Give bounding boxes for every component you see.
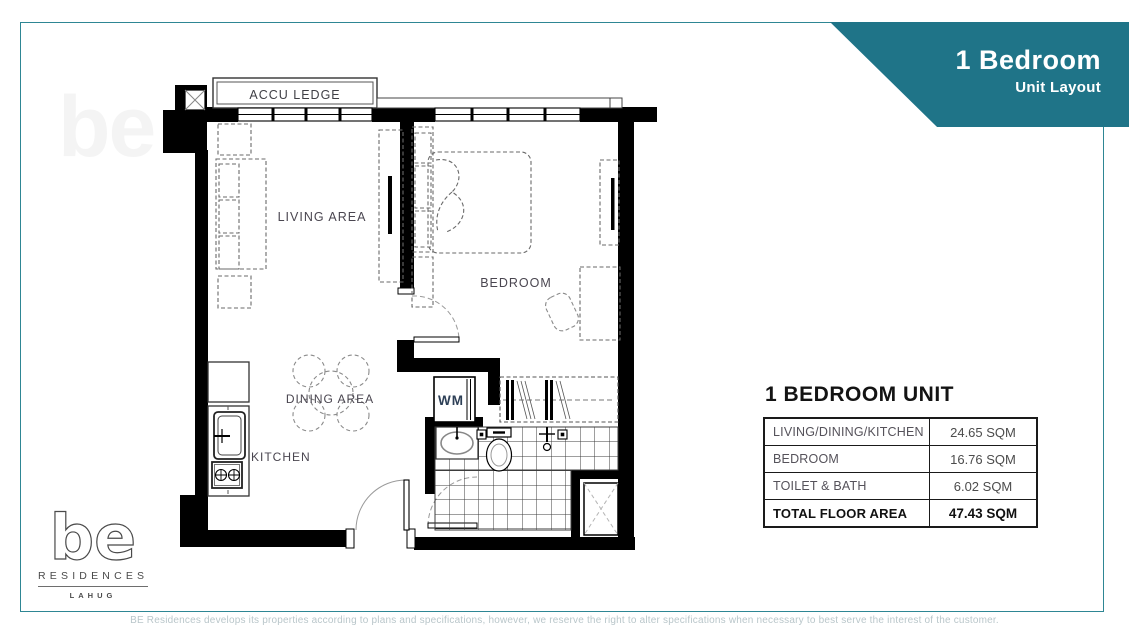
kitchen-label: KITCHEN [251,450,311,464]
bedroom-chair [543,290,582,334]
svg-text:be: be [50,503,136,569]
footer-disclaimer: BE Residences develops its properties ac… [0,615,1129,626]
accu-ledge-label: ACCU LEDGE [249,88,340,102]
closet [500,377,618,422]
row-label: LIVING/DINING/KITCHEN [765,419,930,445]
row-value: 24.65 SQM [930,425,1036,440]
bedroom-label: BEDROOM [480,276,552,290]
bedroom-tv-icon [611,178,615,230]
logo-name: RESIDENCES [38,570,148,587]
kitchen-counter [208,362,249,496]
table-row: LIVING/DINING/KITCHEN 24.65 SQM [765,419,1036,445]
floor-plan: ACCU LEDGE [150,60,720,620]
entrance-door [346,480,415,548]
row-value: 47.43 SQM [930,506,1036,521]
row-label: TOTAL FLOOR AREA [765,500,930,526]
table-row: BEDROOM 16.76 SQM [765,445,1036,472]
dining-area-label: DINING AREA [286,392,374,406]
row-label: TOILET & BATH [765,473,930,499]
accu-ledge-box: ACCU LEDGE [213,78,377,108]
shaft-x-box [584,483,618,535]
bedroom-door [398,288,459,342]
table-row-total: TOTAL FLOOR AREA 47.43 SQM [765,499,1036,526]
washing-machine-box: WM [434,377,475,422]
wm-label: WM [438,393,464,408]
row-value: 6.02 SQM [930,479,1036,494]
row-value: 16.76 SQM [930,452,1036,467]
logo-mark-icon: be [38,503,148,569]
living-tv-icon [388,176,392,234]
be-residences-logo: be RESIDENCES LAHUG [38,503,148,600]
bedroom-ledge [377,98,622,108]
living-area-label: LIVING AREA [278,210,367,224]
table-row: TOILET & BATH 6.02 SQM [765,472,1036,499]
unit-info-panel: 1 BEDROOM UNIT LIVING/DINING/KITCHEN 24.… [763,383,1038,528]
unit-area-table: LIVING/DINING/KITCHEN 24.65 SQM BEDROOM … [763,417,1038,528]
unit-table-title: 1 BEDROOM UNIT [765,383,1038,407]
row-label: BEDROOM [765,446,930,472]
logo-location: LAHUG [38,591,148,600]
toilet [487,428,512,471]
corner-vent-icon [185,90,205,110]
